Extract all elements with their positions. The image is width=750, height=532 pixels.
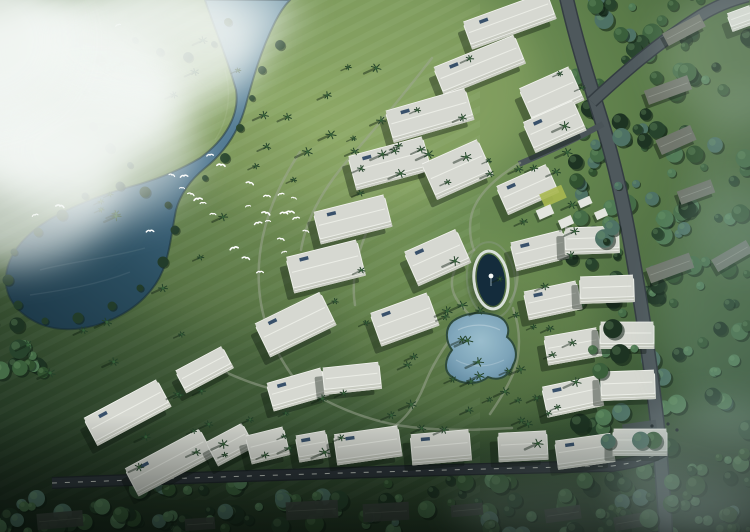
aerial-render xyxy=(0,0,750,532)
aerial-masterplan-rendering xyxy=(0,0,750,532)
